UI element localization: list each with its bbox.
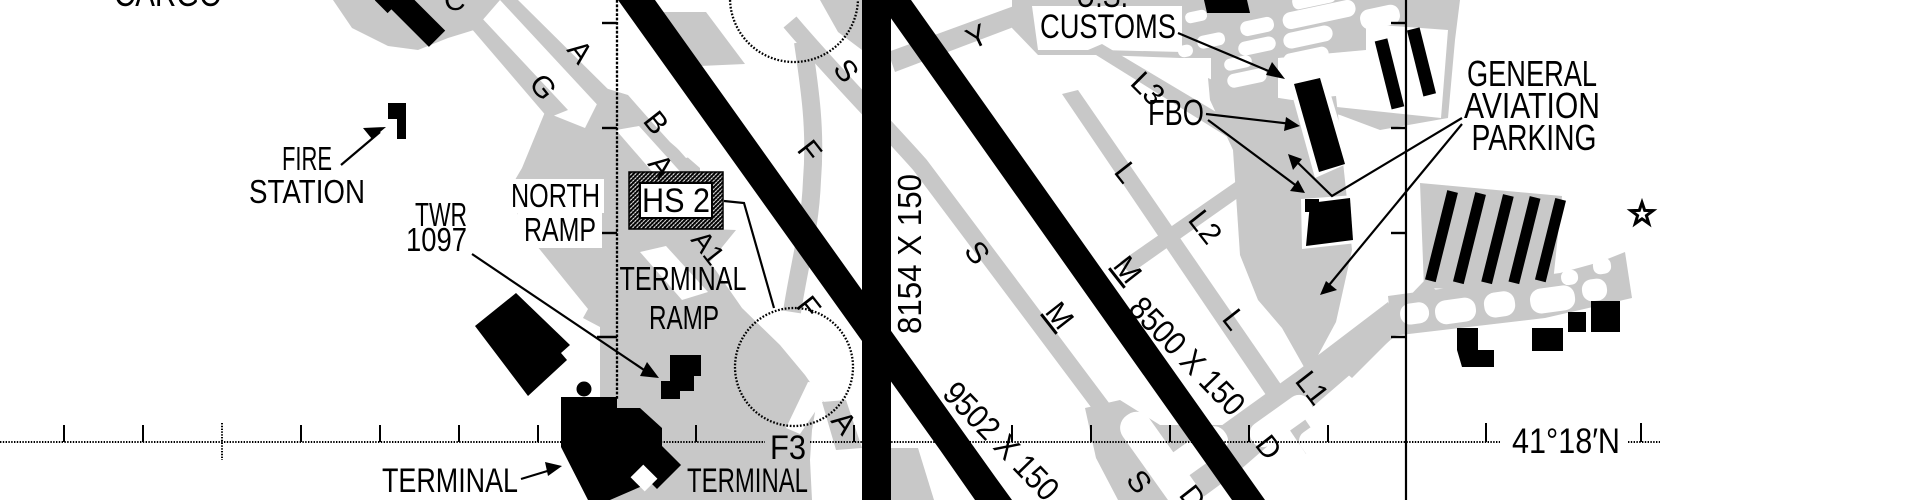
- svg-text:1097: 1097: [406, 221, 467, 258]
- svg-text:FIRE: FIRE: [282, 140, 332, 177]
- svg-text:CUSTOMS: CUSTOMS: [1040, 8, 1176, 46]
- svg-text:STATION: STATION: [249, 173, 365, 210]
- svg-text:NORTH: NORTH: [511, 177, 600, 214]
- svg-text:8154 X 150: 8154 X 150: [891, 174, 928, 334]
- svg-text:RAMP: RAMP: [649, 299, 719, 336]
- svg-text:HS 2: HS 2: [642, 182, 710, 220]
- svg-text:41°18′N: 41°18′N: [1512, 422, 1620, 461]
- svg-text:TERMINAL: TERMINAL: [382, 462, 518, 500]
- svg-text:RAMP: RAMP: [524, 211, 596, 248]
- svg-text:TERMINAL: TERMINAL: [620, 260, 747, 297]
- svg-text:CARGO: CARGO: [114, 0, 222, 14]
- svg-text:C: C: [444, 0, 466, 17]
- svg-text:TERMINAL: TERMINAL: [687, 462, 808, 500]
- svg-text:F3: F3: [770, 429, 806, 467]
- svg-text:PARKING: PARKING: [1472, 117, 1597, 158]
